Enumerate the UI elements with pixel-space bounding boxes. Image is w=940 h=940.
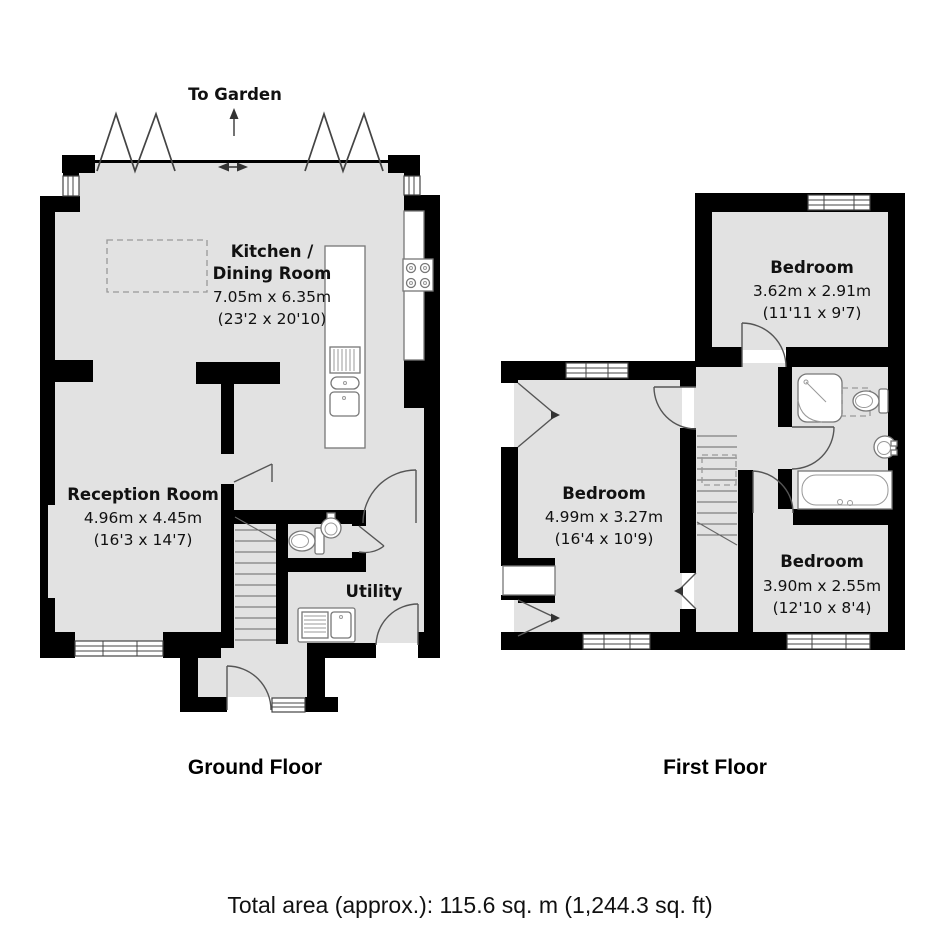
first-floor-title: First Floor	[663, 756, 767, 779]
basin-icon	[874, 436, 897, 458]
kitchen-room-size-imperial: (23'2 x 20'10)	[218, 310, 327, 328]
bedroom-top-size-imperial: (11'11 x 9'7)	[763, 304, 862, 322]
hob-icon	[403, 259, 433, 291]
bedroom-bottom-size-imperial: (12'10 x 8'4)	[773, 599, 872, 617]
wardrobe-niche	[503, 566, 555, 595]
window	[272, 698, 305, 712]
toilet-icon	[853, 389, 888, 413]
bath-icon	[798, 471, 892, 509]
window	[808, 195, 870, 210]
bedroom-left-size-imperial: (16'4 x 10'9)	[555, 530, 654, 548]
window	[75, 641, 163, 656]
shower-icon	[798, 374, 842, 422]
floorplan-page: To Garden Kitchen / Dining Room 7.05m x …	[0, 0, 940, 940]
floorplan-canvas: To Garden Kitchen / Dining Room 7.05m x …	[0, 0, 940, 940]
gf-floor-fill	[48, 160, 424, 700]
reception-room-size-imperial: (16'3 x 14'7)	[94, 531, 193, 549]
window	[566, 363, 628, 378]
bedroom-top-name: Bedroom	[770, 258, 854, 277]
front-door-opening	[227, 697, 271, 712]
utility-room-name: Utility	[346, 582, 403, 601]
utility-sink-icon	[298, 608, 355, 642]
bedroom-bottom-name: Bedroom	[780, 552, 864, 571]
total-area-label: Total area (approx.): 115.6 sq. m (1,244…	[227, 892, 712, 918]
kitchen-room-size-metric: 7.05m x 6.35m	[213, 288, 331, 306]
reception-room-size-metric: 4.96m x 4.45m	[84, 509, 202, 527]
window	[787, 634, 870, 649]
window	[583, 634, 650, 649]
reception-room-name: Reception Room	[67, 485, 219, 504]
sink-bowl-icon	[330, 392, 359, 416]
window	[404, 176, 420, 195]
window	[63, 176, 79, 196]
bedroom-left-size-metric: 4.99m x 3.27m	[545, 508, 663, 526]
kitchen-room-name-line1: Kitchen /	[231, 242, 315, 261]
bedroom-left-name: Bedroom	[562, 484, 646, 503]
kitchen-room-name-line2: Dining Room	[213, 264, 332, 283]
ground-floor-plan: To Garden Kitchen / Dining Room 7.05m x …	[40, 85, 440, 779]
ground-floor-title: Ground Floor	[188, 756, 322, 779]
first-floor-plan: Bedroom 3.62m x 2.91m (11'11 x 9'7) Bedr…	[501, 193, 905, 779]
sink-bowl-icon	[331, 377, 359, 389]
to-garden-arrow-icon	[230, 108, 239, 136]
to-garden-label: To Garden	[188, 85, 282, 104]
bedroom-top-size-metric: 3.62m x 2.91m	[753, 282, 871, 300]
utility-door-opening	[376, 643, 418, 658]
bedroom-bottom-size-metric: 3.90m x 2.55m	[763, 577, 881, 595]
